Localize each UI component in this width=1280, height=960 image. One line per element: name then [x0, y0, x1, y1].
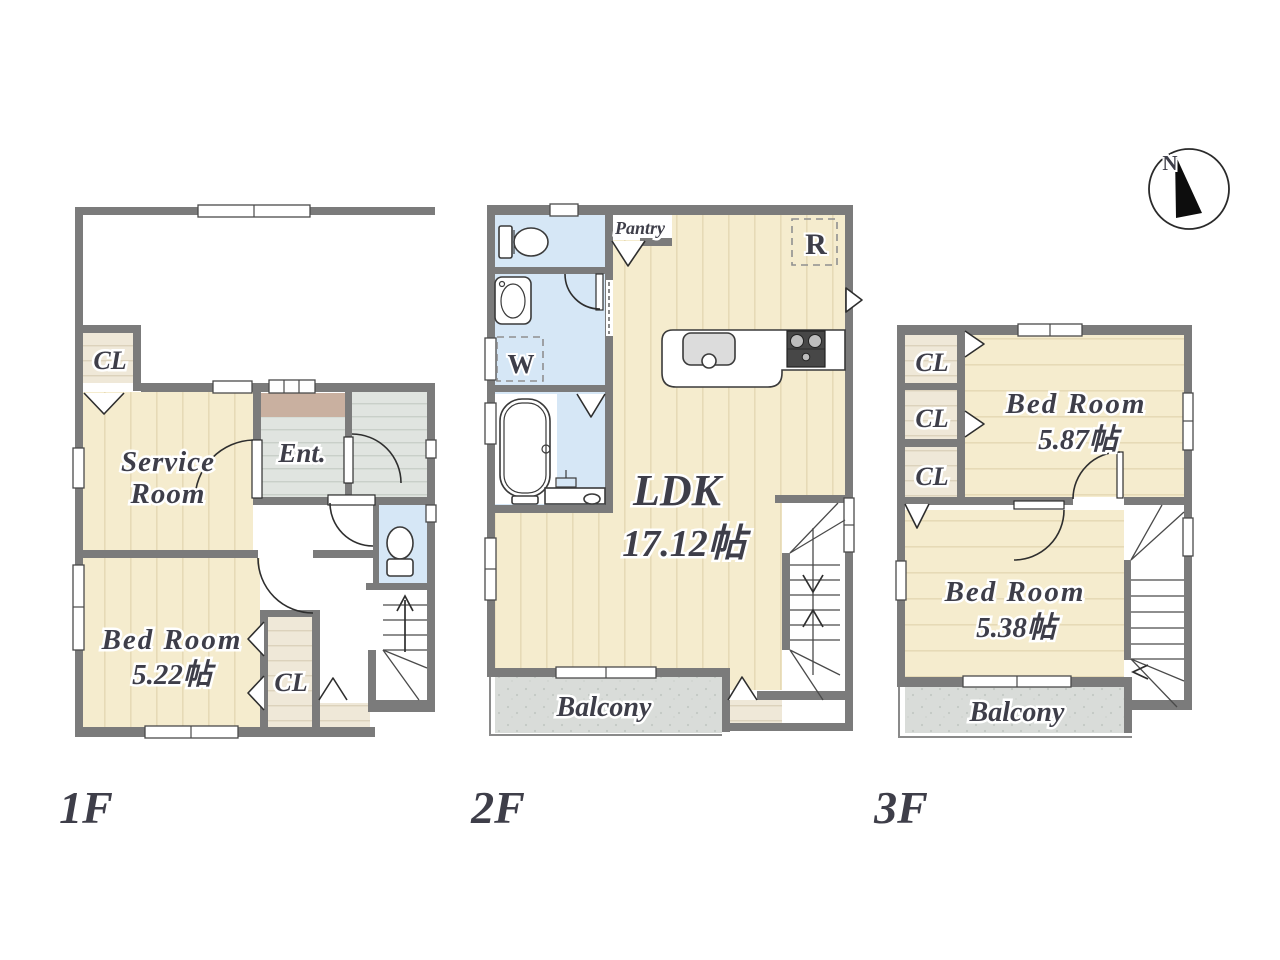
label-closet-3-3f: CL	[915, 462, 948, 491]
hall-strip-1f	[317, 703, 370, 728]
stairs-1f	[383, 596, 427, 700]
label-service-room-2: Room	[130, 478, 206, 510]
under-stairs-closet	[728, 700, 782, 723]
floor-label-2f: 2F	[470, 782, 525, 833]
label-entrance: Ent.	[277, 438, 325, 468]
label-pantry: Pantry	[614, 218, 666, 238]
floor-3f: CL CL CL Bed Room 5.87帖 Bed Room 5.38帖 B…	[873, 324, 1193, 833]
label-closet-lower-1f: CL	[274, 668, 307, 697]
exterior-door-marker	[846, 288, 862, 312]
floor-label-1f: 1F	[59, 782, 113, 833]
compass-north-label: N	[1162, 151, 1177, 175]
floorplan-canvas: CL Service Room Ent. Bed Room 5.22帖 CL 1…	[0, 0, 1280, 960]
label-bedroom-upper-2: 5.87帖	[1038, 424, 1123, 456]
label-bedroom-lower-1: Bed Room	[944, 576, 1086, 608]
hall-fold-door	[319, 678, 347, 700]
label-bedroom-1f-1: Bed Room	[101, 624, 243, 656]
label-refrigerator: R	[805, 228, 827, 261]
stove-icon	[787, 331, 825, 367]
label-closet-upper-1f: CL	[93, 346, 126, 375]
bedroom-lower-door-leaf	[1014, 501, 1064, 509]
entrance-door	[269, 380, 315, 393]
label-ldk-1: LDK	[632, 466, 724, 515]
floor-2f: Pantry R W LDK 17.12帖 Balcony 2F	[470, 204, 862, 833]
label-closet-2-3f: CL	[915, 404, 948, 433]
label-balcony-2f: Balcony	[556, 692, 652, 723]
toilet-icon-2f	[499, 226, 548, 258]
toilet-icon-1f	[387, 527, 413, 576]
floor-1f: CL Service Room Ent. Bed Room 5.22帖 CL 1…	[59, 205, 436, 833]
bathtub-icon	[500, 399, 550, 504]
compass: N	[1149, 149, 1229, 229]
floorplan-page: CL Service Room Ent. Bed Room 5.22帖 CL 1…	[0, 0, 1280, 960]
service-door-leaf	[252, 440, 262, 498]
label-service-room-1: Service	[121, 446, 215, 478]
label-bedroom-upper-1: Bed Room	[1005, 388, 1147, 420]
hall-door-leaf	[328, 495, 375, 505]
washbasin-icon	[495, 277, 531, 324]
label-bedroom-lower-2: 5.38帖	[976, 612, 1061, 644]
label-bedroom-1f-2: 5.22帖	[132, 659, 217, 691]
label-closet-1-3f: CL	[915, 348, 948, 377]
floor-label-3f: 3F	[873, 782, 928, 833]
ldk-floor-corner	[722, 668, 782, 690]
label-washer: W	[508, 349, 535, 379]
porch-tile	[352, 392, 427, 497]
hall-door-arc	[330, 503, 373, 546]
label-balcony-3f: Balcony	[969, 697, 1065, 728]
genkan-step	[261, 393, 345, 417]
bedroom-door-arc	[258, 558, 313, 613]
sink-drain	[702, 354, 716, 368]
label-ldk-2: 17.12帖	[622, 523, 752, 565]
front-door-leaf	[344, 437, 353, 483]
stairwell-3f	[1124, 505, 1184, 700]
bedroom-upper-door-leaf	[1117, 452, 1123, 498]
washroom-door-leaf	[596, 274, 603, 310]
